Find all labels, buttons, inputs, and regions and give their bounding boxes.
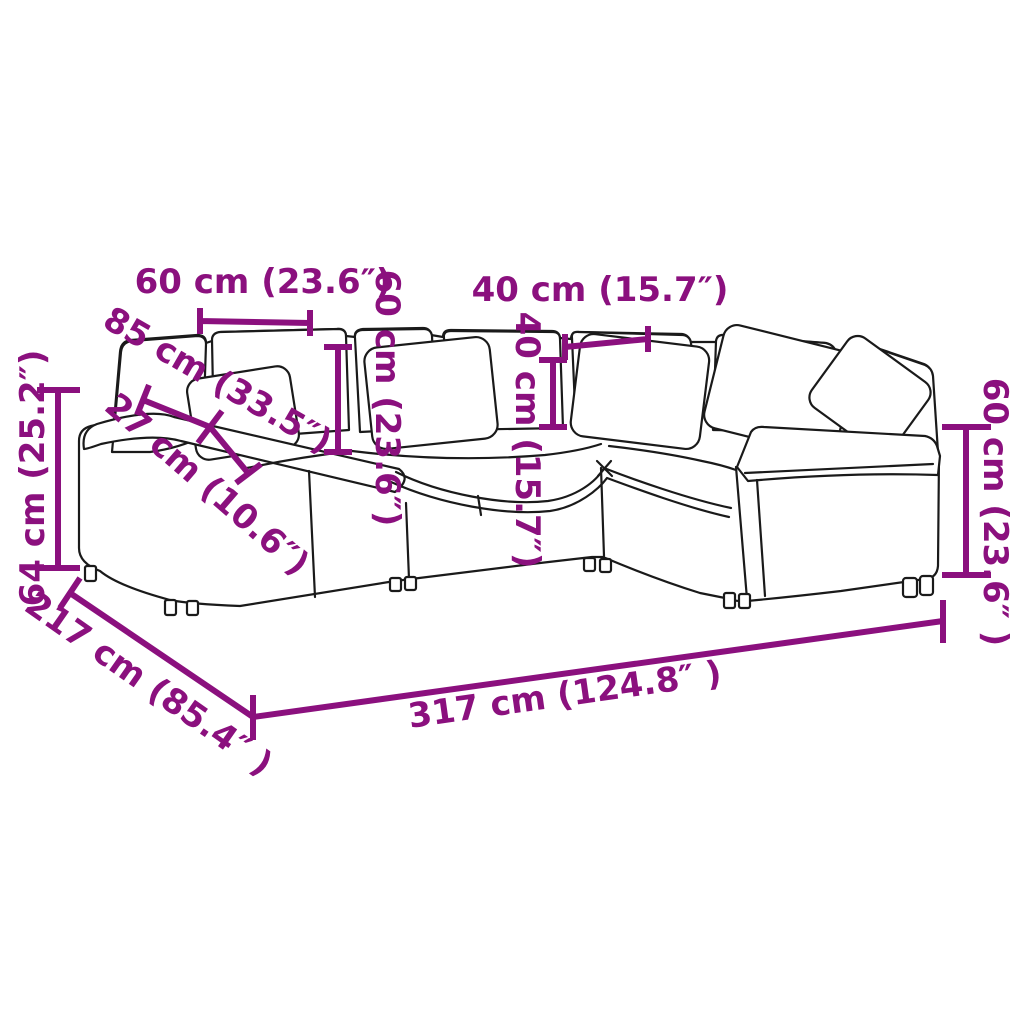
dim-module-width: 60 cm (23.6″) <box>135 262 392 336</box>
dim-total-depth: 217 cm (85.4″ ) <box>17 578 279 784</box>
dim-label-backrest-height: 60 cm (23.6″) <box>367 270 407 527</box>
sofa-dimension-drawing: 60 cm (23.6″) 60 cm (23.6″) 40 cm (15.7″… <box>0 0 1024 1024</box>
dim-label-armrest-height: 60 cm (23.6″ ) <box>975 378 1015 647</box>
dim-label-total-height: 64 cm (25.2″) <box>13 350 53 607</box>
dim-label-module-width: 60 cm (23.6″) <box>135 262 392 302</box>
sofa-leg <box>187 601 198 615</box>
dim-total-height: 64 cm (25.2″) <box>13 350 80 607</box>
dim-total-width: 317 cm (124.8″ ) <box>253 600 943 740</box>
dimension-diagram: 60 cm (23.6″) 60 cm (23.6″) 40 cm (15.7″… <box>0 0 1024 1024</box>
sofa-leg <box>390 578 401 591</box>
sofa-leg <box>739 594 750 608</box>
sofa-leg <box>724 593 735 608</box>
sofa-leg <box>920 576 933 595</box>
dim-label-total-width: 317 cm (124.8″ ) <box>406 653 724 737</box>
sofa-leg <box>165 600 176 615</box>
sofa-leg <box>405 577 416 590</box>
dim-label-pillow-width: 40 cm (15.7″) <box>472 270 729 310</box>
sofa-leg <box>584 558 595 571</box>
sofa-leg <box>903 578 917 597</box>
dim-label-pillow-height: 40 cm (15.7″) <box>507 312 547 569</box>
dim-label-total-depth: 217 cm (85.4″ ) <box>17 584 279 784</box>
throw-pillow <box>569 332 711 450</box>
sofa-leg <box>600 559 611 572</box>
sofa-leg <box>85 566 96 581</box>
dim-armrest-height: 60 cm (23.6″ ) <box>942 378 1015 647</box>
